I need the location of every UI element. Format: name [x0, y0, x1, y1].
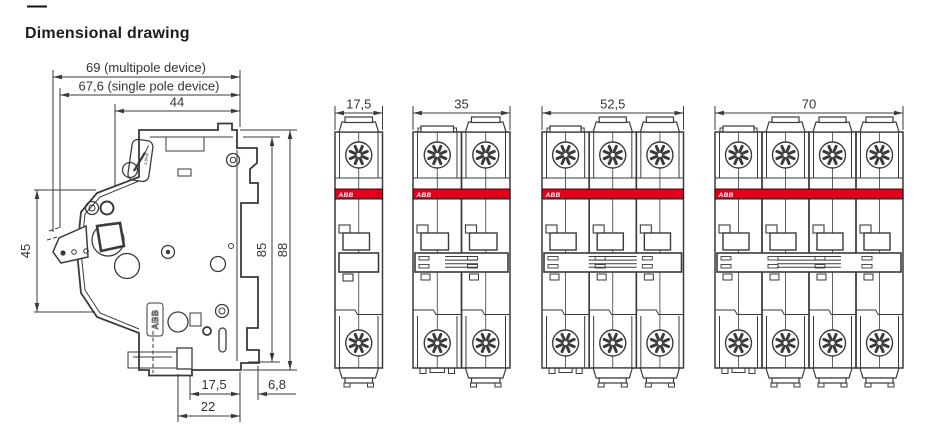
screw-center: [356, 340, 361, 345]
toggle-tab: [417, 225, 428, 233]
screw-spoke: [609, 347, 611, 352]
screw-spoke: [567, 159, 569, 164]
screw-spoke: [735, 347, 737, 352]
bottom-cap: [813, 368, 852, 378]
screw-head-icon: [820, 142, 846, 168]
screw-spoke: [789, 339, 794, 341]
screw-spoke: [782, 334, 784, 339]
foot: [344, 383, 350, 387]
screw-spoke: [360, 159, 362, 164]
screw-spoke: [355, 334, 357, 339]
screw-spoke: [482, 334, 484, 339]
lever-travel-dash: [47, 237, 57, 240]
foot: [771, 383, 777, 387]
screw-spoke: [487, 159, 489, 164]
lever-travel-dash: [49, 227, 61, 231]
top-cap: [813, 122, 852, 132]
screw-spoke: [664, 151, 669, 153]
dim-68-label: 6,8: [268, 377, 286, 392]
screw-center: [736, 152, 741, 157]
foot: [471, 383, 477, 387]
screw-head-icon: [424, 142, 450, 168]
toggle-handle: [339, 253, 379, 272]
screw-spoke: [439, 347, 441, 352]
bottom-cap-block: [819, 378, 846, 383]
handle-tie-bar: [717, 253, 901, 272]
screw-spoke: [664, 339, 669, 341]
screw-spoke: [740, 146, 742, 151]
screw-spoke: [742, 157, 747, 159]
screw-center: [877, 152, 882, 157]
screw-spoke: [567, 146, 569, 151]
top-cap-block: [646, 117, 673, 123]
screw-spoke: [871, 345, 876, 347]
screw-spoke: [735, 146, 737, 151]
screw-spoke: [651, 339, 656, 341]
screw-head-icon: [346, 330, 372, 356]
screw-head-icon: [553, 330, 579, 356]
screw-center: [563, 152, 568, 157]
foot: [549, 368, 555, 374]
case-slot: [219, 328, 226, 352]
screw-spoke: [562, 159, 564, 164]
screw-center: [736, 340, 741, 345]
screw-spoke: [614, 146, 616, 151]
bottom-cap: [466, 368, 507, 378]
screw-spoke: [836, 157, 841, 159]
dimension-arrow: [542, 111, 551, 115]
bottom-cap-block: [345, 378, 373, 383]
screw-spoke: [836, 339, 841, 341]
screw-head-icon: [773, 330, 799, 356]
screw-center: [563, 340, 568, 345]
screw-spoke: [742, 345, 747, 347]
foot: [645, 383, 651, 387]
screw-spoke: [355, 159, 357, 164]
screw-spoke: [557, 151, 562, 153]
screw-spoke: [777, 345, 782, 347]
screw-spoke: [350, 339, 355, 341]
screw-spoke: [789, 345, 794, 347]
screw-spoke: [363, 345, 368, 347]
screw-spoke: [614, 347, 616, 352]
abb-logo-text: ABB: [150, 310, 160, 330]
toggle-upper: [470, 233, 498, 250]
screw-center: [877, 340, 882, 345]
rivet-hole: [86, 202, 99, 215]
screw-spoke: [557, 345, 562, 347]
screw-spoke: [883, 345, 888, 347]
screw-spoke: [656, 159, 658, 164]
screw-spoke: [617, 339, 622, 341]
dim-85-label: 85: [254, 243, 269, 257]
top-cap-block: [819, 117, 846, 123]
top-cap: [593, 122, 632, 132]
bottom-cap: [339, 368, 379, 378]
dimension-arrow: [288, 130, 293, 139]
screw-spoke: [360, 347, 362, 352]
screw-spoke: [490, 345, 495, 347]
brand-band-label: ABB: [718, 192, 734, 199]
screw-head-icon: [773, 142, 799, 168]
screw-spoke: [876, 159, 878, 164]
front-view-2pole: 35ABB: [413, 97, 510, 388]
screw-spoke: [604, 339, 609, 341]
foot: [794, 383, 800, 387]
toggle-tab: [719, 225, 730, 233]
screw-spoke: [881, 159, 883, 164]
dimension-arrow: [60, 93, 69, 98]
screw-spoke: [487, 334, 489, 339]
screw-spoke: [824, 157, 829, 159]
handle-tie-bar: [415, 253, 508, 272]
screw-spoke: [617, 157, 622, 159]
top-cap: [640, 122, 679, 132]
toggle-tab: [860, 225, 871, 233]
foot: [495, 383, 501, 387]
screw-center: [830, 152, 835, 157]
screw-spoke: [787, 146, 789, 151]
screw-spoke: [662, 146, 664, 151]
dimension-arrow: [190, 392, 199, 396]
screw-center: [783, 152, 788, 157]
screw-center: [657, 340, 662, 345]
rivet-hole: [216, 305, 229, 318]
bottom-cap-block: [646, 378, 673, 383]
screw-spoke: [740, 347, 742, 352]
screw-spoke: [662, 347, 664, 352]
bottom-cap: [640, 368, 679, 378]
screw-spoke: [355, 146, 357, 151]
screw-spoke: [617, 151, 622, 153]
dimension-arrow: [335, 111, 344, 115]
bottom-cap-block: [866, 378, 893, 383]
toggle-upper: [817, 233, 843, 250]
toggle-subtab: [817, 274, 826, 280]
dimension-arrow: [178, 414, 187, 418]
screw-spoke: [567, 347, 569, 352]
screw-spoke: [441, 339, 446, 341]
front-width-label: 35: [454, 97, 468, 112]
foot: [818, 383, 824, 387]
screw-spoke: [836, 345, 841, 347]
screw-spoke: [490, 157, 495, 159]
dim-22-label: 22: [201, 399, 215, 414]
internal-chamber: [166, 137, 204, 151]
screw-spoke: [777, 151, 782, 153]
screw-spoke: [477, 157, 482, 159]
toggle-subtab: [550, 274, 559, 280]
small-hole: [203, 327, 211, 335]
screw-spoke: [439, 146, 441, 151]
screw-spoke: [881, 334, 883, 339]
dimension-arrow: [115, 109, 124, 114]
screw-spoke: [742, 339, 747, 341]
dimension-arrow: [258, 392, 267, 396]
screw-spoke: [656, 347, 658, 352]
abb-logo-plate: ABB: [147, 303, 163, 336]
screw-spoke: [777, 157, 782, 159]
screw-spoke: [617, 345, 622, 347]
internal-vent: [178, 169, 191, 176]
screw-spoke: [829, 334, 831, 339]
screw-spoke: [562, 146, 564, 151]
top-cap-block: [345, 117, 373, 123]
screw-spoke: [570, 151, 575, 153]
screw-spoke: [789, 151, 794, 153]
screw-spoke: [876, 334, 878, 339]
toggle-tab: [593, 225, 604, 233]
dim-175-label: 17,5: [201, 377, 226, 392]
screw-spoke: [829, 159, 831, 164]
bottom-cap: [860, 368, 899, 378]
screw-spoke: [883, 157, 888, 159]
screw-spoke: [871, 157, 876, 159]
screw-head-icon: [647, 330, 673, 356]
screw-spoke: [441, 157, 446, 159]
screw-center: [483, 340, 488, 345]
brand-band-label: ABB: [545, 192, 561, 199]
foot: [449, 368, 455, 374]
dimension-arrow: [501, 111, 510, 115]
dimensional-drawing-page: — Dimensional drawing 2.8Nm: [0, 0, 938, 445]
screw-spoke: [871, 151, 876, 153]
top-cap-block: [866, 117, 893, 123]
screw-spoke: [429, 157, 434, 159]
screw-spoke: [557, 157, 562, 159]
screw-spoke: [730, 151, 735, 153]
screw-spoke: [434, 146, 436, 151]
screw-spoke: [782, 146, 784, 151]
screw-center: [435, 340, 440, 345]
top-cap-block: [772, 117, 799, 123]
small-hole: [229, 244, 234, 249]
screw-head-icon: [726, 142, 752, 168]
top-cap: [766, 122, 805, 132]
brand-band-label: ABB: [416, 192, 432, 199]
brand-band: [542, 189, 684, 199]
top-cap-short: [723, 126, 754, 132]
screw-spoke: [570, 157, 575, 159]
screw-spoke: [441, 151, 446, 153]
screw-spoke: [787, 347, 789, 352]
screw-spoke: [656, 146, 658, 151]
screw-spoke: [439, 334, 441, 339]
dimension-arrow: [231, 414, 240, 418]
bottom-cap: [593, 368, 632, 378]
bottom-cap: [766, 368, 805, 378]
screw-spoke: [824, 151, 829, 153]
dimension-arrow: [270, 137, 275, 146]
screw-spoke: [604, 157, 609, 159]
screw-spoke: [651, 345, 656, 347]
drawing-canvas: 2.8Nm ABB: [0, 0, 938, 445]
screw-spoke: [834, 347, 836, 352]
case-hole-large: [115, 254, 140, 279]
screw-spoke: [881, 146, 883, 151]
front-width-label: 70: [802, 97, 816, 112]
dimension-arrow: [715, 111, 724, 115]
case-hole-bottom: [168, 312, 188, 332]
foot: [576, 368, 582, 374]
screw-spoke: [876, 146, 878, 151]
screw-spoke: [656, 334, 658, 339]
screw-spoke: [651, 151, 656, 153]
toggle-subtab: [343, 274, 353, 281]
screw-spoke: [651, 157, 656, 159]
dimension-arrow: [53, 75, 62, 80]
front-width-label: 17,5: [346, 97, 371, 112]
screw-center: [610, 152, 615, 157]
screw-head-icon: [424, 330, 450, 356]
screw-head-icon: [867, 330, 893, 356]
bottom-cap-block: [599, 378, 626, 383]
screw-spoke: [363, 339, 368, 341]
screw-spoke: [614, 159, 616, 164]
dimension-arrow: [231, 75, 240, 80]
dimension-arrow: [374, 111, 383, 115]
foot: [598, 383, 604, 387]
screw-spoke: [434, 347, 436, 352]
screw-spoke: [883, 339, 888, 341]
dimension-arrow: [231, 392, 240, 396]
toggle-upper: [550, 233, 576, 250]
front-width-label: 52,5: [600, 97, 625, 112]
toggle-tab: [813, 225, 824, 233]
screw-spoke: [434, 159, 436, 164]
brand-band-label: ABB: [338, 192, 354, 199]
handle-tie-bar: [544, 253, 682, 272]
screw-spoke: [557, 339, 562, 341]
toggle-subtab: [470, 274, 479, 280]
top-cap-block: [472, 117, 501, 123]
screw-spoke: [730, 345, 735, 347]
screw-spoke: [363, 157, 368, 159]
foot: [749, 368, 755, 374]
screw-spoke: [735, 334, 737, 339]
dimension-arrow: [231, 109, 240, 114]
screw-spoke: [350, 157, 355, 159]
toggle-tab: [466, 225, 477, 233]
screw-spoke: [441, 345, 446, 347]
screw-spoke: [609, 334, 611, 339]
screw-spoke: [609, 159, 611, 164]
side-view: 2.8Nm ABB: [18, 60, 297, 422]
screw-center: [356, 152, 361, 157]
screw-spoke: [429, 151, 434, 153]
toggle-upper: [723, 233, 749, 250]
screw-spoke: [829, 347, 831, 352]
screw-spoke: [477, 345, 482, 347]
top-cap: [466, 122, 507, 132]
screw-center: [483, 152, 488, 157]
toggle-tab: [640, 225, 651, 233]
screw-head-icon: [346, 142, 372, 168]
screw-spoke: [482, 146, 484, 151]
screw-spoke: [876, 347, 878, 352]
screw-spoke: [829, 146, 831, 151]
screw-spoke: [883, 151, 888, 153]
screw-spoke: [836, 151, 841, 153]
screw-spoke: [482, 347, 484, 352]
screw-spoke: [662, 334, 664, 339]
screw-spoke: [782, 159, 784, 164]
screw-spoke: [482, 159, 484, 164]
screw-spoke: [487, 347, 489, 352]
screw-spoke: [490, 151, 495, 153]
toggle-subtab: [644, 274, 653, 280]
foot: [420, 368, 426, 374]
screw-spoke: [604, 151, 609, 153]
toggle-knob: [97, 223, 124, 251]
screw-spoke: [360, 334, 362, 339]
front-view-1pole: 17,5ABB: [335, 97, 383, 388]
toggle-upper: [421, 233, 449, 250]
toggle-subtab: [421, 274, 430, 280]
terminal-clamp: [177, 348, 192, 369]
center-rivet-dot: [166, 250, 170, 254]
screw-spoke: [740, 334, 742, 339]
screw-spoke: [787, 159, 789, 164]
top-cap-short: [421, 126, 454, 132]
case-hole: [211, 257, 226, 272]
screw-spoke: [567, 334, 569, 339]
dimension-arrow: [35, 303, 40, 312]
screw-spoke: [429, 339, 434, 341]
dimension-arrow: [413, 111, 422, 115]
front-view-3pole: 52,5ABB: [542, 97, 684, 388]
dimension-arrow: [231, 93, 240, 98]
front-views: 17,5ABB35ABB52,5ABB70ABB: [335, 97, 903, 388]
toggle-subtab: [597, 274, 606, 280]
screw-spoke: [735, 159, 737, 164]
screw-center: [610, 340, 615, 345]
screw-head-icon: [600, 330, 626, 356]
toggle-subtab: [864, 274, 873, 280]
bottom-cap-block: [472, 378, 501, 383]
screw-head-icon: [726, 330, 752, 356]
foot: [841, 383, 847, 387]
rivet-hole: [101, 202, 114, 215]
screw-spoke: [834, 334, 836, 339]
toggle-subtab: [723, 274, 732, 280]
screw-spoke: [782, 347, 784, 352]
screw-spoke: [477, 339, 482, 341]
screw-center: [657, 152, 662, 157]
foot: [669, 383, 675, 387]
screw-spoke: [477, 151, 482, 153]
screw-spoke: [740, 159, 742, 164]
screw-spoke: [664, 157, 669, 159]
screw-spoke: [350, 345, 355, 347]
screw-spoke: [434, 334, 436, 339]
screw-spoke: [570, 345, 575, 347]
screw-spoke: [730, 157, 735, 159]
screw-spoke: [570, 339, 575, 341]
rivet-hole: [227, 154, 240, 167]
screw-center: [783, 340, 788, 345]
screw-spoke: [429, 345, 434, 347]
front-view-4pole: 70ABB: [715, 97, 903, 388]
screw-spoke: [609, 146, 611, 151]
dimension-arrow: [270, 353, 275, 362]
toggle-lever: [53, 226, 88, 263]
rivet-hole-inner: [219, 308, 225, 314]
screw-spoke: [490, 339, 495, 341]
screw-spoke: [834, 159, 836, 164]
dim-88-label: 88: [275, 243, 290, 257]
screw-spoke: [350, 151, 355, 153]
